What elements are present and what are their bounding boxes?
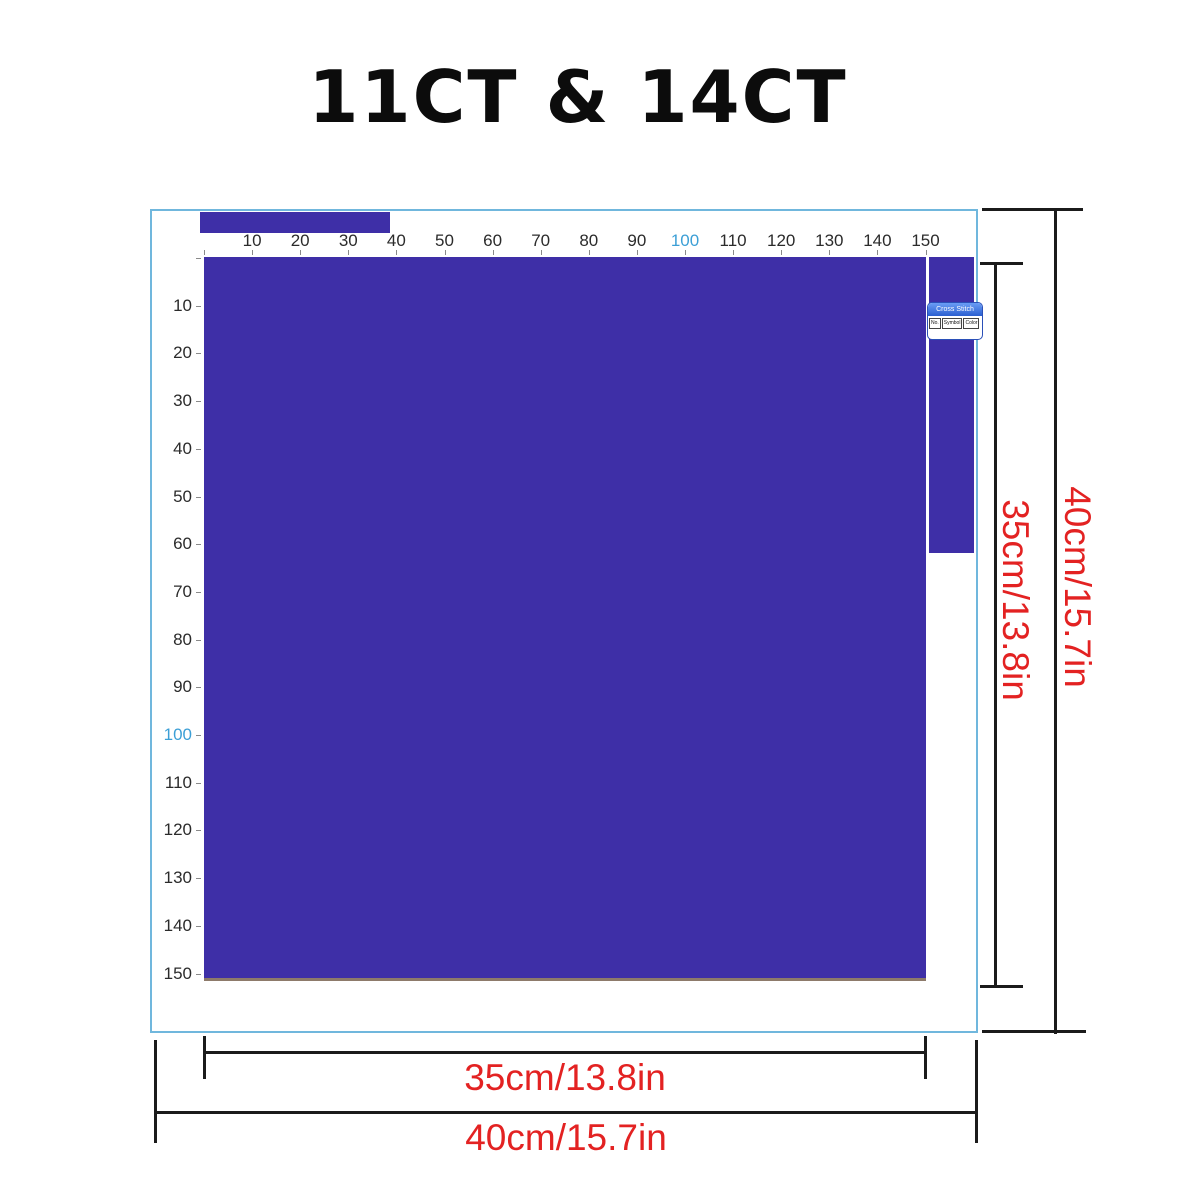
left-ruler-label: 120 — [164, 820, 192, 840]
width-inner-left-tick — [203, 1036, 206, 1079]
top-ruler-tick — [685, 250, 686, 255]
top-ruler-label: 110 — [720, 231, 747, 251]
width-outer-dimension-label: 40cm/15.7in — [465, 1117, 667, 1159]
left-ruler-label: 140 — [164, 916, 192, 936]
width-inner-dimension-label: 35cm/13.8in — [464, 1057, 666, 1099]
top-ruler-label: 60 — [483, 231, 502, 251]
top-ruler-tick — [300, 250, 301, 255]
top-ruler-label: 150 — [911, 231, 939, 251]
height-inner-top-cap — [980, 262, 1023, 265]
top-ruler-label: 50 — [435, 231, 454, 251]
top-ruler-tick — [926, 250, 927, 255]
left-ruler-tick — [196, 926, 201, 927]
legend-columns: No. Symbol Color — [928, 316, 982, 331]
legend-col-color: Color — [963, 318, 979, 329]
top-ruler-label: 30 — [339, 231, 358, 251]
top-ruler-label: 40 — [387, 231, 406, 251]
left-ruler-tick — [196, 353, 201, 354]
product-size-diagram: 11CT & 14CT 1020304050607080901001101201… — [0, 0, 1200, 1200]
left-ruler-tick — [196, 401, 201, 402]
top-ruler-label: 70 — [531, 231, 550, 251]
top-ruler-tick — [252, 250, 253, 255]
top-ruler-tick — [541, 250, 542, 255]
legend-col-no: No. — [929, 318, 941, 329]
height-outer-dimension-label: 40cm/15.7in — [1056, 486, 1098, 688]
width-outer-dimension-line — [154, 1111, 978, 1114]
left-ruler-label: 150 — [164, 964, 192, 984]
top-ruler-tick — [589, 250, 590, 255]
height-inner-dimension-label: 35cm/13.8in — [994, 499, 1036, 701]
top-ruler-label: 140 — [863, 231, 891, 251]
top-ruler-tick — [493, 250, 494, 255]
top-ruler-tick — [829, 250, 830, 255]
top-ruler-tick — [637, 250, 638, 255]
top-ruler-tick — [445, 250, 446, 255]
width-outer-right-tick — [975, 1040, 978, 1143]
top-ruler-tick — [396, 250, 397, 255]
left-ruler-tick — [196, 878, 201, 879]
left-ruler-label: 100 — [164, 725, 192, 745]
left-ruler-label: 70 — [173, 582, 192, 602]
top-ruler-label: 100 — [671, 231, 699, 251]
top-ruler-tick — [877, 250, 878, 255]
width-inner-dimension-line — [204, 1051, 926, 1054]
left-ruler-tick — [196, 592, 201, 593]
top-ruler-label: 120 — [767, 231, 795, 251]
left-ruler-label: 60 — [173, 534, 192, 554]
left-ruler-tick — [196, 830, 201, 831]
top-ruler-label: 10 — [243, 231, 262, 251]
top-ruler-label: 80 — [579, 231, 598, 251]
left-ruler-label: 110 — [165, 773, 192, 793]
left-ruler-tick — [196, 449, 201, 450]
width-inner-right-tick — [924, 1036, 927, 1079]
height-outer-top-cap — [982, 208, 1083, 211]
left-ruler-tick — [196, 974, 201, 975]
left-ruler-label: 90 — [173, 677, 192, 697]
left-ruler-tick — [196, 640, 201, 641]
left-ruler-label: 10 — [173, 296, 192, 316]
left-ruler-label: 130 — [164, 868, 192, 888]
horizontal-scrollbar — [200, 212, 390, 233]
left-ruler-tick — [196, 687, 201, 688]
page-title: 11CT & 14CT — [308, 55, 847, 139]
width-outer-left-tick — [154, 1040, 157, 1143]
left-ruler-label: 50 — [173, 487, 192, 507]
top-ruler-tick — [733, 250, 734, 255]
cross-stitch-legend-widget: Cross Stitch No. Symbol Color — [927, 302, 983, 340]
left-ruler-tick — [196, 306, 201, 307]
top-ruler-label: 130 — [815, 231, 843, 251]
top-ruler-label: 20 — [291, 231, 310, 251]
height-inner-bottom-cap — [980, 985, 1023, 988]
pattern-canvas — [204, 257, 926, 981]
left-ruler-tick — [196, 735, 201, 736]
legend-col-symbol: Symbol — [942, 318, 963, 329]
left-ruler-tick — [196, 258, 201, 259]
left-ruler-label: 80 — [173, 630, 192, 650]
legend-title: Cross Stitch — [928, 303, 982, 316]
left-ruler-label: 30 — [173, 391, 192, 411]
left-ruler-tick — [196, 497, 201, 498]
left-ruler-tick — [196, 783, 201, 784]
top-ruler-tick — [348, 250, 349, 255]
height-outer-bottom-cap — [982, 1030, 1086, 1033]
left-ruler-label: 40 — [173, 439, 192, 459]
top-ruler-tick — [781, 250, 782, 255]
left-ruler-label: 20 — [173, 343, 192, 363]
left-ruler-tick — [196, 544, 201, 545]
top-ruler-tick — [204, 250, 205, 255]
top-ruler-label: 90 — [627, 231, 646, 251]
